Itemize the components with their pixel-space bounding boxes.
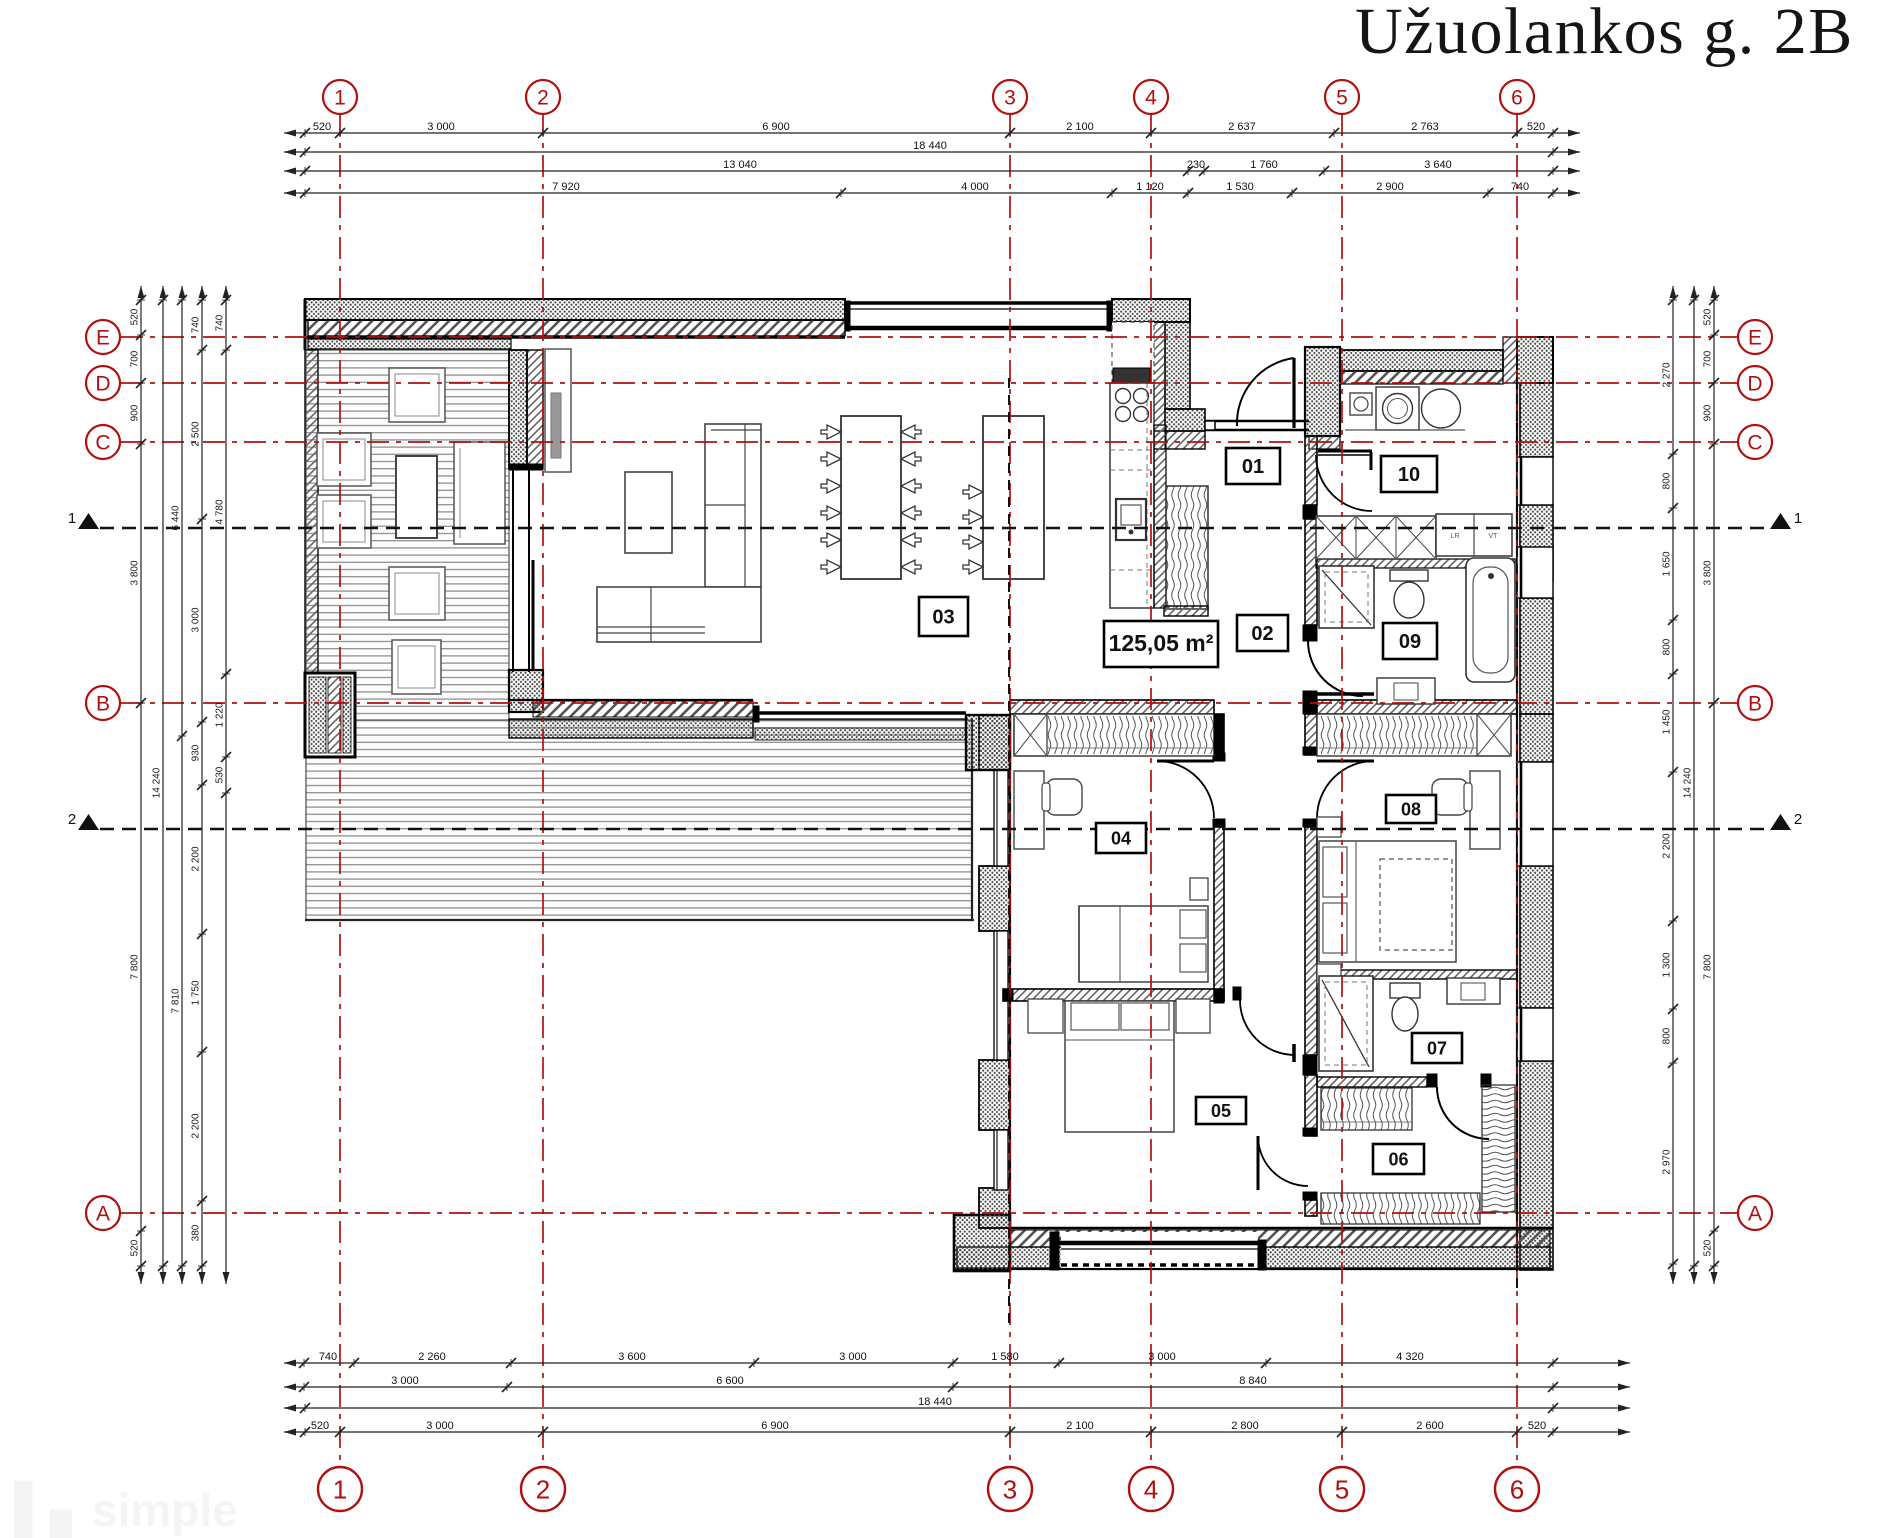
svg-text:VT: VT [1489, 533, 1499, 540]
svg-text:2 270: 2 270 [1662, 362, 1673, 387]
svg-text:900: 900 [130, 404, 141, 421]
svg-text:520: 520 [1527, 121, 1545, 133]
svg-text:8 840: 8 840 [1239, 1375, 1267, 1387]
svg-text:18 440: 18 440 [913, 140, 947, 152]
svg-text:D: D [1747, 373, 1762, 396]
svg-text:1 120: 1 120 [1136, 181, 1164, 193]
svg-text:4 000: 4 000 [961, 181, 989, 193]
svg-text:800: 800 [1662, 638, 1673, 655]
svg-text:1 580: 1 580 [991, 1351, 1019, 1363]
svg-text:E: E [1748, 327, 1762, 350]
svg-text:740: 740 [215, 314, 226, 331]
svg-text:800: 800 [1662, 472, 1673, 489]
svg-text:3: 3 [1004, 87, 1016, 110]
svg-text:14 240: 14 240 [1683, 767, 1694, 798]
svg-text:740: 740 [1511, 181, 1529, 193]
svg-text:520: 520 [130, 1239, 141, 1256]
svg-text:3 640: 3 640 [1424, 159, 1452, 171]
svg-text:2 200: 2 200 [191, 1113, 202, 1138]
svg-text:▌▖: ▌▖ [14, 1480, 91, 1538]
svg-text:4 320: 4 320 [1396, 1351, 1424, 1363]
svg-text:2 800: 2 800 [1231, 1420, 1259, 1432]
svg-text:simple: simple [92, 1484, 238, 1536]
svg-text:1: 1 [1794, 510, 1802, 527]
svg-text:2 763: 2 763 [1411, 121, 1439, 133]
svg-text:740: 740 [319, 1351, 337, 1363]
svg-text:900: 900 [1703, 404, 1714, 421]
svg-text:4: 4 [1144, 1475, 1158, 1505]
svg-text:2 200: 2 200 [1662, 833, 1673, 858]
svg-text:1 760: 1 760 [1250, 159, 1278, 171]
svg-text:3 000: 3 000 [191, 607, 202, 632]
svg-text:4: 4 [1145, 87, 1157, 110]
svg-text:06: 06 [1388, 1149, 1408, 1169]
svg-text:5: 5 [1335, 1475, 1349, 1505]
svg-text:03: 03 [932, 607, 954, 629]
svg-text:13 040: 13 040 [723, 159, 757, 171]
svg-text:2 500: 2 500 [191, 421, 202, 446]
svg-text:7 800: 7 800 [1703, 954, 1714, 979]
svg-text:1: 1 [68, 510, 76, 527]
svg-text:E: E [96, 327, 110, 350]
svg-text:LR: LR [1451, 533, 1460, 540]
svg-text:2 970: 2 970 [1662, 1149, 1673, 1174]
svg-text:6: 6 [1510, 1475, 1524, 1505]
svg-text:2: 2 [68, 811, 76, 828]
svg-text:930: 930 [191, 744, 202, 761]
svg-text:B: B [96, 693, 110, 716]
svg-text:09: 09 [1399, 631, 1421, 653]
svg-text:07: 07 [1427, 1038, 1447, 1058]
svg-text:1 450: 1 450 [1662, 709, 1673, 734]
svg-text:2 100: 2 100 [1066, 121, 1094, 133]
svg-text:230: 230 [1187, 159, 1205, 171]
svg-text:01: 01 [1242, 456, 1264, 478]
svg-text:3 000: 3 000 [1148, 1351, 1176, 1363]
svg-text:6 440: 6 440 [171, 505, 182, 530]
svg-text:740: 740 [191, 316, 202, 333]
svg-text:14 240: 14 240 [152, 767, 163, 798]
svg-text:2: 2 [537, 87, 549, 110]
svg-text:4 780: 4 780 [215, 499, 226, 524]
svg-text:05: 05 [1211, 1101, 1231, 1121]
svg-text:1: 1 [334, 87, 346, 110]
svg-text:520: 520 [311, 1420, 329, 1432]
svg-text:7 800: 7 800 [130, 954, 141, 979]
svg-text:1 530: 1 530 [1226, 181, 1254, 193]
svg-text:3 600: 3 600 [618, 1351, 646, 1363]
svg-text:2 637: 2 637 [1228, 121, 1256, 133]
svg-text:2: 2 [1794, 811, 1802, 828]
svg-text:2 900: 2 900 [1376, 181, 1404, 193]
svg-text:6 600: 6 600 [716, 1375, 744, 1387]
svg-text:08: 08 [1401, 799, 1421, 819]
svg-text:6 900: 6 900 [762, 121, 790, 133]
svg-text:7 810: 7 810 [171, 988, 182, 1013]
svg-text:18 440: 18 440 [918, 1396, 952, 1408]
svg-text:380: 380 [191, 1224, 202, 1241]
svg-text:3 000: 3 000 [391, 1375, 419, 1387]
svg-text:2 200: 2 200 [191, 846, 202, 871]
svg-text:1: 1 [333, 1475, 347, 1505]
svg-text:7 920: 7 920 [552, 181, 580, 193]
svg-text:700: 700 [1703, 350, 1714, 367]
svg-text:3 000: 3 000 [839, 1351, 867, 1363]
svg-text:520: 520 [130, 308, 141, 325]
svg-text:520: 520 [1528, 1420, 1546, 1432]
svg-text:6: 6 [1511, 87, 1523, 110]
svg-text:A: A [1748, 1203, 1762, 1226]
svg-text:520: 520 [1703, 1239, 1714, 1256]
svg-text:1 750: 1 750 [191, 980, 202, 1005]
svg-text:3 800: 3 800 [1703, 560, 1714, 585]
svg-text:125,05 m²: 125,05 m² [1109, 630, 1214, 656]
svg-text:2 600: 2 600 [1416, 1420, 1444, 1432]
svg-text:D: D [95, 373, 110, 396]
svg-text:1 650: 1 650 [1662, 551, 1673, 576]
svg-text:1 220: 1 220 [215, 702, 226, 727]
svg-text:6 900: 6 900 [761, 1420, 789, 1432]
svg-text:700: 700 [130, 350, 141, 367]
svg-text:520: 520 [313, 121, 331, 133]
svg-text:3 000: 3 000 [426, 1420, 454, 1432]
svg-text:3: 3 [1003, 1475, 1017, 1505]
svg-text:B: B [1748, 693, 1762, 716]
svg-text:3 000: 3 000 [427, 121, 455, 133]
svg-text:C: C [95, 432, 110, 455]
svg-text:5: 5 [1336, 87, 1348, 110]
svg-text:520: 520 [1703, 308, 1714, 325]
svg-text:10: 10 [1398, 464, 1420, 486]
svg-text:530: 530 [215, 766, 226, 783]
svg-text:A: A [96, 1203, 110, 1226]
svg-text:2: 2 [536, 1475, 550, 1505]
svg-text:3 800: 3 800 [130, 560, 141, 585]
svg-text:2 260: 2 260 [418, 1351, 446, 1363]
svg-text:04: 04 [1111, 828, 1131, 848]
svg-text:Užuolankos g. 2B: Užuolankos g. 2B [1355, 0, 1854, 68]
svg-text:1 300: 1 300 [1662, 952, 1673, 977]
svg-text:C: C [1747, 432, 1762, 455]
svg-text:02: 02 [1251, 623, 1273, 645]
svg-text:800: 800 [1662, 1027, 1673, 1044]
svg-text:2 100: 2 100 [1066, 1420, 1094, 1432]
